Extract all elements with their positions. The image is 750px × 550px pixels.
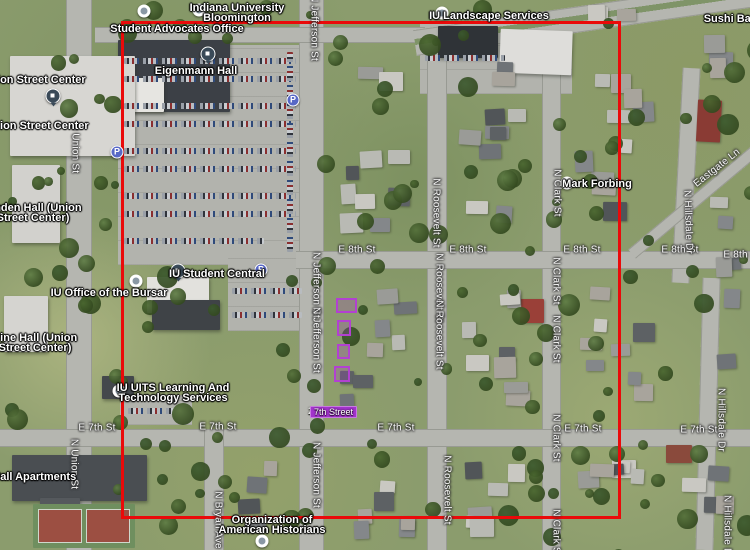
union-street-center-north-pin[interactable] [46, 89, 61, 104]
student-advocates-office-pin[interactable] [138, 5, 151, 18]
tree [94, 176, 108, 190]
poi-label-line: IU Student Central [169, 269, 265, 279]
map-canvas[interactable]: 2307th StreetE 8th StE 8th StE 8th StE 8… [0, 0, 750, 550]
house [717, 215, 733, 229]
tree [690, 445, 707, 462]
house [627, 371, 641, 384]
union-street-center-south-label[interactable]: Union Street Center [0, 121, 89, 131]
tree [32, 176, 46, 190]
tree [744, 186, 750, 201]
poi-label-line: IU Landscape Services [429, 11, 549, 21]
street-label: E 7th St [680, 425, 717, 436]
tree [737, 515, 750, 536]
iu-uits-learning-and-technology-services-label[interactable]: IU UITS Learning AndTechnology Services [117, 383, 230, 403]
poi-label-line: Union Street Center [0, 75, 86, 85]
street-label: E 8th St [563, 245, 600, 256]
street-label: N Roosevelt St [442, 455, 453, 525]
poi-label-line: Street Center) [0, 213, 82, 223]
house [633, 323, 656, 342]
street-label: N Hillsdale Dr [681, 190, 694, 254]
house [353, 521, 368, 539]
house [616, 8, 635, 21]
iu-student-central-label[interactable]: IU Student Central [169, 269, 265, 279]
pine-hall-union-street-center-label[interactable]: Pine Hall (UnionStreet Center) [0, 333, 77, 353]
poi-label-line: Mark Forbing [562, 179, 632, 189]
street-label: N Clark St [551, 257, 562, 305]
poi-label-line: Sushi Bar Bloom [704, 14, 750, 24]
tree [104, 96, 121, 113]
tree [717, 114, 738, 135]
street-label: E 7th St [377, 423, 414, 434]
tree [638, 440, 648, 450]
tree [658, 366, 672, 380]
tree [24, 268, 43, 287]
house [716, 353, 736, 369]
tree [7, 409, 28, 430]
linden-hall-union-street-center-label[interactable]: Linden Hall (UnionStreet Center) [0, 203, 82, 223]
tree [677, 509, 698, 530]
tree [724, 62, 745, 83]
house [710, 197, 728, 209]
street-label: N Clark St [552, 169, 563, 217]
tree [51, 55, 66, 70]
street-label: E 8th St [449, 245, 486, 256]
street-label: E 7th St [199, 422, 236, 433]
tree [99, 218, 112, 231]
street-label: N Clark St [551, 509, 562, 550]
street-label: E 7th St [564, 424, 601, 435]
tree [78, 255, 95, 272]
street-label: N Jefferson St [311, 307, 322, 373]
tree [94, 94, 104, 104]
poi-label-line: Street Center) [0, 343, 77, 353]
iu-landscape-services-label[interactable]: IU Landscape Services [429, 11, 549, 21]
street-label: N Hillsdale Dr [722, 495, 733, 550]
parking-icon[interactable]: P [287, 94, 300, 107]
street-label: E 7th St [78, 423, 115, 434]
poi-label-line: American Historians [219, 525, 326, 535]
tree [651, 474, 665, 488]
tree [702, 63, 712, 73]
tree [69, 54, 79, 64]
iu-office-of-the-bursar-pin[interactable] [130, 275, 143, 288]
poi-label-line: Eigenmann Hall [155, 66, 238, 76]
mark-forbing-label[interactable]: Mark Forbing [562, 179, 632, 189]
house [630, 468, 644, 484]
tennis-court [38, 509, 82, 543]
house [470, 517, 494, 538]
house [588, 5, 605, 22]
tree [686, 265, 699, 278]
house [634, 384, 653, 401]
house [723, 288, 740, 307]
tree [44, 177, 53, 186]
street-label: N Hillsdale Dr [716, 388, 727, 452]
house [682, 478, 707, 493]
tree [57, 167, 65, 175]
street-label: N Clark St [551, 315, 562, 363]
street-label: N Clark St [551, 414, 562, 462]
poi-label-line: Bloomington [190, 13, 285, 23]
street-label: N Roosevelt St [434, 300, 445, 370]
tree [623, 270, 637, 284]
tree [52, 265, 67, 280]
poi-label-line: IU Office of the Bursar [51, 288, 168, 298]
organization-of-american-historians-pin[interactable] [256, 535, 269, 548]
tree [703, 95, 721, 113]
street-label: N Jefferson St [309, 0, 320, 61]
tree [643, 235, 654, 246]
eigenmann-hall-label[interactable]: Eigenmann Hall [155, 66, 238, 76]
poi-label-line: Student Advocates Office [110, 24, 243, 34]
poi-label-line: on Hall Apartments [0, 472, 76, 482]
indiana-university-bloomington-label[interactable]: Indiana UniversityBloomington [190, 3, 285, 23]
student-advocates-office-label[interactable]: Student Advocates Office [110, 24, 243, 34]
hall-apartments-label[interactable]: on Hall Apartments [0, 472, 76, 482]
union-street-center-north-label[interactable]: Union Street Center [0, 75, 86, 85]
iu-office-of-the-bursar-label[interactable]: IU Office of the Bursar [51, 288, 168, 298]
tree [59, 238, 79, 258]
parking-icon[interactable]: P [111, 146, 124, 159]
eigenmann-hall-pin[interactable] [201, 47, 216, 62]
red-roof-house [666, 445, 692, 463]
street-label: E 8th St [338, 245, 375, 256]
tree [680, 113, 692, 125]
house [708, 466, 730, 482]
poi-label-line: Technology Services [117, 393, 230, 403]
sushi-bar-bloomington-label[interactable]: Sushi Bar Bloom [704, 14, 750, 24]
house [704, 35, 726, 54]
tree [60, 99, 78, 117]
street-label: N Roosevelt St [431, 178, 442, 248]
parcel-street-chip[interactable]: 7th Street [310, 406, 357, 418]
poi-label-line: Union Street Center [0, 121, 89, 131]
house [624, 89, 643, 109]
street-label: E 8th St [723, 250, 750, 261]
tree [640, 499, 650, 509]
street-label: N Jefferson St [311, 442, 322, 508]
organization-of-american-historians-label[interactable]: Organization ofAmerican Historians [219, 515, 326, 535]
tree [628, 109, 645, 126]
